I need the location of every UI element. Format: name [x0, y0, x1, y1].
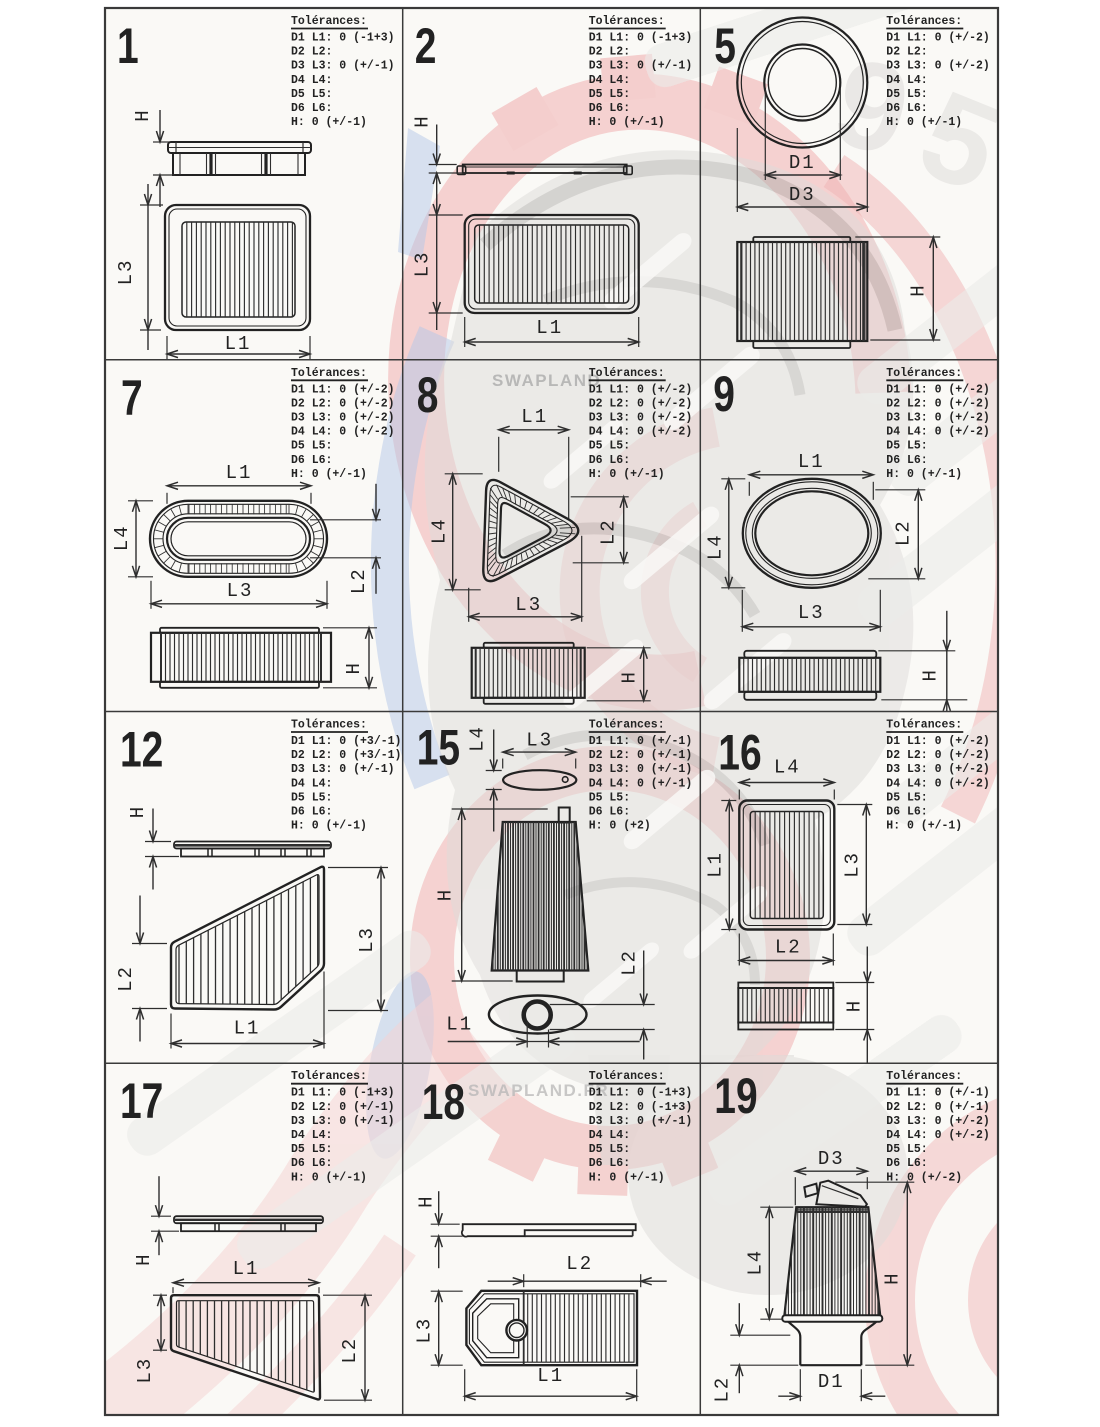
svg-text:H: 0 (+/-1): H: 0 (+/-1): [589, 468, 665, 481]
svg-text:D4 L4: 0 (+/-2): D4 L4: 0 (+/-2): [589, 426, 693, 439]
svg-text:D4 L4:: D4 L4:: [291, 777, 332, 790]
svg-text:D6 L6:: D6 L6:: [291, 1157, 332, 1170]
svg-text:D2 L2: 0 (+/-1): D2 L2: 0 (+/-1): [291, 1101, 395, 1114]
svg-text:17: 17: [120, 1072, 163, 1129]
svg-text:D4 L4: 0 (+/-1): D4 L4: 0 (+/-1): [589, 777, 693, 790]
svg-text:Tolérances:: Tolérances:: [589, 367, 665, 380]
svg-text:D5 L5:: D5 L5:: [589, 791, 630, 804]
svg-text:H: 0 (+/-1): H: 0 (+/-1): [886, 468, 962, 481]
svg-text:D6 L6:: D6 L6:: [589, 454, 630, 467]
svg-text:D1 L1: 0 (+/-2): D1 L1: 0 (+/-2): [589, 383, 693, 396]
svg-text:D5 L5:: D5 L5:: [589, 440, 630, 453]
svg-text:D3 L3: 0 (+/-1): D3 L3: 0 (+/-1): [589, 763, 693, 776]
svg-text:H: 0 (+2): H: 0 (+2): [589, 820, 651, 833]
svg-text:D5 L5:: D5 L5:: [886, 1143, 927, 1156]
svg-text:L4: L4: [774, 757, 801, 779]
svg-text:H: H: [416, 1196, 438, 1207]
svg-text:D2 L2: 0 (+/-2): D2 L2: 0 (+/-2): [886, 749, 990, 762]
svg-text:D1 L1: 0 (+/-2): D1 L1: 0 (+/-2): [886, 383, 990, 396]
svg-text:Tolérances:: Tolérances:: [589, 15, 665, 28]
svg-text:7: 7: [121, 369, 143, 426]
svg-text:L3: L3: [841, 851, 863, 878]
svg-text:Tolérances:: Tolérances:: [886, 367, 962, 380]
svg-text:D3 L3: 0 (+/-2): D3 L3: 0 (+/-2): [291, 412, 395, 425]
svg-text:D6 L6:: D6 L6:: [589, 102, 630, 115]
svg-text:D5 L5:: D5 L5:: [886, 440, 927, 453]
svg-text:H: H: [619, 672, 641, 683]
svg-text:2: 2: [415, 17, 437, 74]
svg-text:L3: L3: [526, 730, 553, 752]
svg-text:D2 L2:: D2 L2:: [589, 46, 630, 59]
svg-text:D4 L4:: D4 L4:: [589, 74, 630, 87]
svg-text:L3: L3: [414, 1317, 436, 1344]
svg-text:H: H: [881, 1273, 903, 1284]
svg-text:D5 L5:: D5 L5:: [291, 1143, 332, 1156]
svg-text:D4 L4:: D4 L4:: [291, 74, 332, 87]
svg-text:L4: L4: [704, 533, 726, 560]
svg-text:D4 L4: 0 (+/-2): D4 L4: 0 (+/-2): [886, 777, 990, 790]
svg-text:D3 L3: 0 (+/-2): D3 L3: 0 (+/-2): [886, 412, 990, 425]
svg-text:L1: L1: [226, 462, 253, 484]
svg-text:D1 L1: 0 (-1+3): D1 L1: 0 (-1+3): [291, 32, 395, 45]
svg-text:L2: L2: [348, 567, 370, 594]
svg-text:L1: L1: [233, 1258, 260, 1280]
svg-text:H: H: [127, 807, 149, 818]
svg-text:D3 L3: 0 (+/-2): D3 L3: 0 (+/-2): [886, 1115, 990, 1128]
svg-text:L3: L3: [515, 594, 542, 616]
svg-text:8: 8: [417, 366, 439, 423]
svg-text:L1: L1: [521, 406, 548, 428]
svg-text:15: 15: [417, 719, 460, 776]
svg-text:Tolérances:: Tolérances:: [589, 1070, 665, 1083]
svg-text:D1: D1: [789, 152, 816, 174]
svg-text:16: 16: [718, 724, 761, 781]
svg-text:19: 19: [714, 1067, 757, 1124]
svg-text:D4 L4: 0 (+/-2): D4 L4: 0 (+/-2): [886, 1129, 990, 1142]
svg-text:D2 L2: 0 (+/-2): D2 L2: 0 (+/-2): [589, 397, 693, 410]
svg-text:H: H: [907, 285, 929, 296]
svg-text:L1: L1: [234, 1018, 261, 1040]
svg-text:L1: L1: [537, 1365, 564, 1387]
svg-text:1: 1: [117, 17, 139, 74]
svg-text:D2 L2:: D2 L2:: [291, 46, 332, 59]
svg-text:D3 L3: 0 (+/-1): D3 L3: 0 (+/-1): [589, 1115, 693, 1128]
svg-text:H: H: [412, 116, 434, 127]
svg-text:D1 L1: 0 (+/-2): D1 L1: 0 (+/-2): [886, 735, 990, 748]
svg-text:D6 L6:: D6 L6:: [886, 454, 927, 467]
svg-text:Tolérances:: Tolérances:: [886, 719, 962, 732]
svg-text:L3: L3: [412, 251, 434, 278]
svg-text:L1: L1: [536, 317, 563, 339]
svg-text:D6 L6:: D6 L6:: [886, 806, 927, 819]
svg-text:D1 L1: 0 (+/-2): D1 L1: 0 (+/-2): [886, 32, 990, 45]
svg-text:D1 L1: 0 (-1+3): D1 L1: 0 (-1+3): [291, 1087, 395, 1100]
svg-text:D3 L3: 0 (+/-2): D3 L3: 0 (+/-2): [886, 60, 990, 73]
svg-text:D1 L1: 0 (+3/-1): D1 L1: 0 (+3/-1): [291, 735, 401, 748]
svg-text:D2 L2: 0 (+/-1): D2 L2: 0 (+/-1): [886, 1101, 990, 1114]
svg-text:D5 L5:: D5 L5:: [291, 791, 332, 804]
svg-text:L3: L3: [356, 926, 378, 953]
svg-text:Tolérances:: Tolérances:: [291, 367, 367, 380]
svg-text:D1 L1: 0 (+/-2): D1 L1: 0 (+/-2): [291, 383, 395, 396]
svg-text:L1: L1: [798, 451, 825, 473]
svg-text:H: 0 (+/-1): H: 0 (+/-1): [291, 468, 367, 481]
svg-text:D1: D1: [818, 1371, 845, 1393]
svg-text:D2 L2: 0 (+/-2): D2 L2: 0 (+/-2): [291, 397, 395, 410]
svg-text:L2: L2: [339, 1337, 361, 1364]
svg-text:D5 L5:: D5 L5:: [886, 88, 927, 101]
svg-text:D3 L3: 0 (+/-1): D3 L3: 0 (+/-1): [291, 60, 395, 73]
svg-text:D4 L4:: D4 L4:: [291, 1129, 332, 1142]
svg-text:L1: L1: [704, 851, 726, 878]
svg-text:L1: L1: [446, 1014, 473, 1036]
svg-text:L3: L3: [227, 580, 254, 602]
svg-text:D3 L3: 0 (+/-2): D3 L3: 0 (+/-2): [886, 763, 990, 776]
svg-text:L4: L4: [467, 725, 489, 752]
svg-text:L2: L2: [566, 1253, 593, 1275]
svg-text:9: 9: [713, 365, 735, 422]
svg-text:12: 12: [120, 721, 163, 778]
svg-text:L4: L4: [429, 517, 451, 544]
svg-text:D2 L2: 0 (+/-1): D2 L2: 0 (+/-1): [589, 749, 693, 762]
svg-text:D2 L2:: D2 L2:: [886, 46, 927, 59]
svg-text:L2: L2: [711, 1376, 733, 1403]
svg-text:H: H: [133, 1254, 155, 1265]
svg-text:L2: L2: [892, 519, 914, 546]
svg-text:H: 0 (+/-1): H: 0 (+/-1): [291, 116, 367, 129]
svg-text:D3: D3: [789, 184, 816, 206]
svg-text:D1 L1: 0 (-1+3): D1 L1: 0 (-1+3): [589, 32, 693, 45]
svg-text:18: 18: [422, 1073, 465, 1130]
svg-text:SWAPLAND: SWAPLAND: [492, 371, 601, 390]
svg-text:D5 L5:: D5 L5:: [291, 88, 332, 101]
svg-text:L2: L2: [115, 965, 137, 992]
svg-text:L1: L1: [225, 333, 252, 355]
svg-text:Tolérances:: Tolérances:: [589, 719, 665, 732]
svg-text:L3: L3: [134, 1357, 156, 1384]
svg-text:Tolérances:: Tolérances:: [291, 15, 367, 28]
svg-text:D5 L5:: D5 L5:: [589, 1143, 630, 1156]
svg-text:H: H: [843, 1001, 865, 1012]
svg-text:D1 L1: 0 (+/-1): D1 L1: 0 (+/-1): [589, 735, 693, 748]
svg-text:H: 0 (+/-1): H: 0 (+/-1): [886, 116, 962, 129]
svg-text:D3 L3: 0 (+/-2): D3 L3: 0 (+/-2): [589, 412, 693, 425]
svg-text:H: 0 (+/-1): H: 0 (+/-1): [589, 116, 665, 129]
svg-text:D2 L2: 0 (+/-2): D2 L2: 0 (+/-2): [886, 397, 990, 410]
svg-text:Tolérances:: Tolérances:: [886, 15, 962, 28]
svg-text:D6 L6:: D6 L6:: [886, 1157, 927, 1170]
svg-text:L2: L2: [775, 937, 802, 959]
svg-text:D1 L1: 0 (-1+3): D1 L1: 0 (-1+3): [589, 1087, 693, 1100]
svg-text:D5 L5:: D5 L5:: [291, 440, 332, 453]
svg-text:H: H: [435, 890, 457, 901]
svg-text:L3: L3: [798, 602, 825, 624]
svg-text:L4: L4: [744, 1249, 766, 1276]
svg-text:D3 L3: 0 (+/-1): D3 L3: 0 (+/-1): [589, 60, 693, 73]
svg-text:L2: L2: [619, 949, 641, 976]
svg-text:D4 L4:: D4 L4:: [886, 74, 927, 87]
svg-text:D3: D3: [818, 1148, 845, 1170]
svg-text:D4 L4: 0 (+/-2): D4 L4: 0 (+/-2): [886, 426, 990, 439]
svg-text:D1 L1: 0 (+/-1): D1 L1: 0 (+/-1): [886, 1087, 990, 1100]
svg-text:H: H: [132, 110, 154, 121]
svg-text:Tolérances:: Tolérances:: [291, 1070, 367, 1083]
svg-text:D6 L6:: D6 L6:: [291, 454, 332, 467]
svg-text:D6 L6:: D6 L6:: [589, 806, 630, 819]
svg-text:D4 L4:: D4 L4:: [589, 1129, 630, 1142]
svg-text:H: 0 (+/-1): H: 0 (+/-1): [589, 1171, 665, 1184]
svg-text:H: 0 (+/-1): H: 0 (+/-1): [886, 820, 962, 833]
svg-text:D5 L5:: D5 L5:: [589, 88, 630, 101]
svg-text:D6 L6:: D6 L6:: [886, 102, 927, 115]
svg-text:H: H: [919, 670, 941, 681]
svg-text:D3 L3: 0 (+/-1): D3 L3: 0 (+/-1): [291, 1115, 395, 1128]
svg-text:D6 L6:: D6 L6:: [589, 1157, 630, 1170]
svg-text:L3: L3: [115, 259, 137, 286]
svg-text:H: 0 (+/-1): H: 0 (+/-1): [291, 1171, 367, 1184]
svg-text:L2: L2: [598, 518, 620, 545]
svg-text:D6 L6:: D6 L6:: [291, 102, 332, 115]
svg-text:H: 0 (+/-1): H: 0 (+/-1): [291, 820, 367, 833]
svg-text:Tolérances:: Tolérances:: [291, 719, 367, 732]
svg-text:5: 5: [714, 17, 736, 74]
svg-text:D6 L6:: D6 L6:: [291, 806, 332, 819]
svg-text:D5 L5:: D5 L5:: [886, 791, 927, 804]
svg-text:D3 L3: 0 (+/-1): D3 L3: 0 (+/-1): [291, 763, 395, 776]
svg-text:D2 L2: 0 (-1+3): D2 L2: 0 (-1+3): [589, 1101, 693, 1114]
svg-text:L4: L4: [111, 524, 133, 551]
svg-text:D4 L4: 0 (+/-2): D4 L4: 0 (+/-2): [291, 426, 395, 439]
svg-text:Tolérances:: Tolérances:: [886, 1070, 962, 1083]
svg-text:D2 L2: 0 (+3/-1): D2 L2: 0 (+3/-1): [291, 749, 401, 762]
svg-text:H: H: [343, 663, 365, 674]
